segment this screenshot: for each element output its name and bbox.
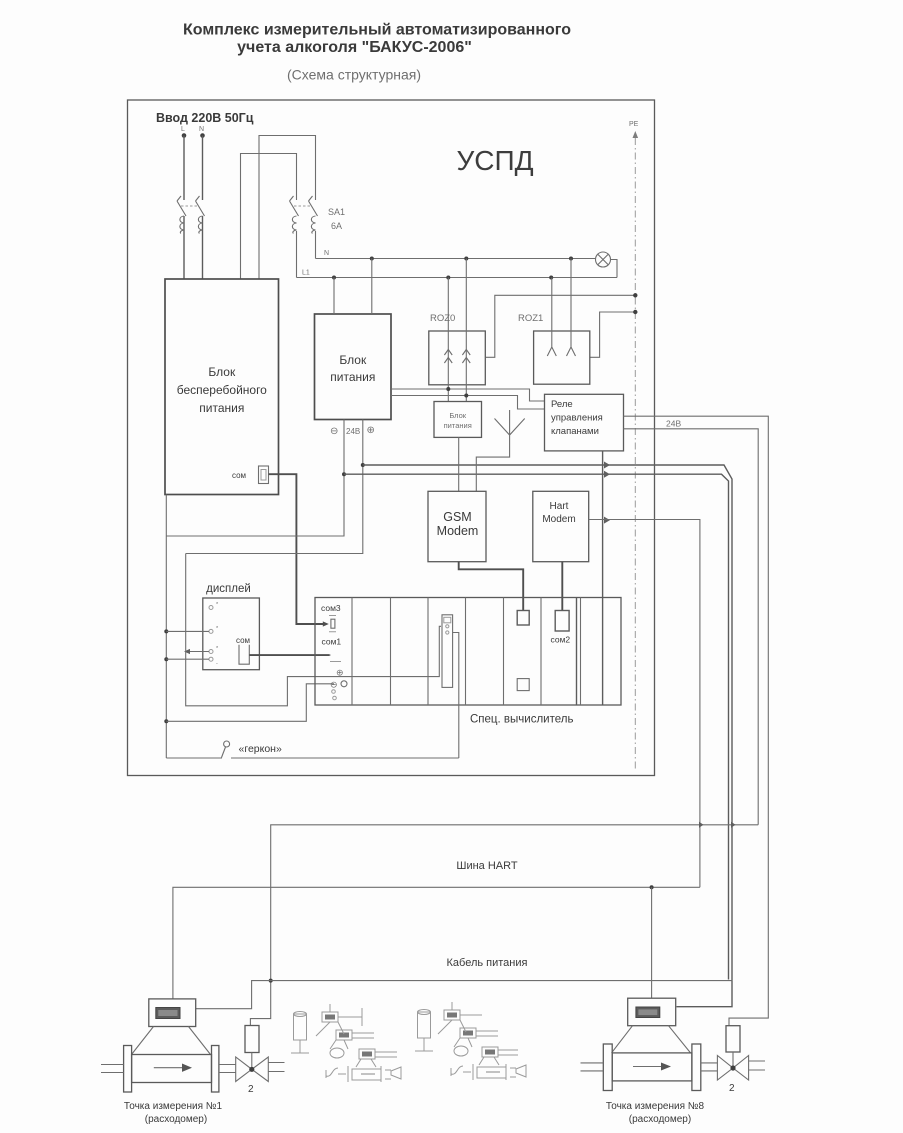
svg-text:SA1: SA1 bbox=[328, 207, 345, 217]
svg-text:2: 2 bbox=[729, 1083, 735, 1094]
svg-text:управления: управления bbox=[551, 413, 603, 424]
svg-text:питания: питания bbox=[199, 401, 244, 415]
svg-text:Блок: Блок bbox=[339, 353, 367, 367]
svg-text:Реле: Реле bbox=[551, 399, 573, 410]
svg-text:УСПД: УСПД bbox=[456, 145, 533, 176]
svg-text:дисплей: дисплей bbox=[206, 583, 251, 595]
svg-text:Комплекс измерительный автомат: Комплекс измерительный автоматизированно… bbox=[183, 22, 571, 39]
svg-text:Спец. вычислитель: Спец. вычислитель bbox=[470, 714, 573, 726]
svg-text:PE: PE bbox=[629, 121, 639, 128]
svg-text:сом3: сом3 bbox=[321, 603, 341, 613]
svg-text:клапанами: клапанами bbox=[551, 426, 599, 437]
svg-text:⊖: ⊖ bbox=[330, 680, 338, 690]
svg-text:ROZ1: ROZ1 bbox=[518, 313, 543, 324]
svg-text:сом: сом bbox=[232, 471, 246, 480]
svg-text:⊕: ⊕ bbox=[367, 425, 375, 436]
svg-text:N: N bbox=[324, 250, 329, 257]
svg-text:питания: питания bbox=[330, 370, 375, 384]
svg-text:Шина HART: Шина HART bbox=[456, 860, 518, 872]
svg-text:«геркон»: «геркон» bbox=[239, 743, 282, 755]
svg-text:GSM: GSM bbox=[443, 510, 471, 524]
svg-text:сом: сом bbox=[236, 636, 250, 645]
svg-text:L: L bbox=[181, 126, 185, 133]
svg-text:*: * bbox=[216, 602, 219, 608]
svg-text:N: N bbox=[199, 126, 204, 133]
svg-text:*: * bbox=[216, 646, 219, 652]
svg-text:Modem: Modem bbox=[542, 514, 575, 525]
svg-text:(расходомер): (расходомер) bbox=[145, 1114, 207, 1125]
svg-text:Точка измерения №8: Точка измерения №8 bbox=[606, 1101, 705, 1112]
svg-text:⊕: ⊕ bbox=[336, 668, 344, 678]
svg-text:Ввод 220В 50Гц: Ввод 220В 50Гц bbox=[156, 111, 254, 125]
svg-text:-: - bbox=[216, 661, 218, 667]
svg-text:Точка измерения №1: Точка измерения №1 bbox=[124, 1101, 223, 1112]
svg-text:учета алкоголя "БАКУС-2006": учета алкоголя "БАКУС-2006" bbox=[237, 39, 472, 56]
svg-text:бесперебойного: бесперебойного bbox=[177, 383, 267, 397]
svg-text:Кабель питания: Кабель питания bbox=[447, 957, 528, 969]
svg-text:Блок: Блок bbox=[208, 365, 236, 379]
svg-text:L1: L1 bbox=[302, 270, 310, 277]
svg-text:Блок: Блок bbox=[449, 411, 466, 420]
svg-text:24В: 24В bbox=[346, 427, 360, 436]
svg-text:питания: питания bbox=[444, 421, 472, 430]
svg-text:сом2: сом2 bbox=[551, 635, 571, 645]
svg-text:2: 2 bbox=[248, 1084, 254, 1095]
svg-text:Hart: Hart bbox=[550, 501, 569, 512]
svg-text:⊖: ⊖ bbox=[330, 426, 338, 437]
svg-text:Modem: Modem bbox=[437, 524, 479, 538]
svg-text:(расходомер): (расходомер) bbox=[629, 1114, 691, 1125]
svg-text:*: * bbox=[216, 626, 219, 632]
svg-text:сом1: сом1 bbox=[322, 637, 342, 647]
svg-text:24В: 24В bbox=[666, 419, 681, 429]
svg-text:ROZ0: ROZ0 bbox=[430, 313, 455, 324]
svg-text:(Схема структурная): (Схема структурная) bbox=[287, 67, 421, 83]
svg-text:6А: 6А bbox=[331, 221, 342, 231]
